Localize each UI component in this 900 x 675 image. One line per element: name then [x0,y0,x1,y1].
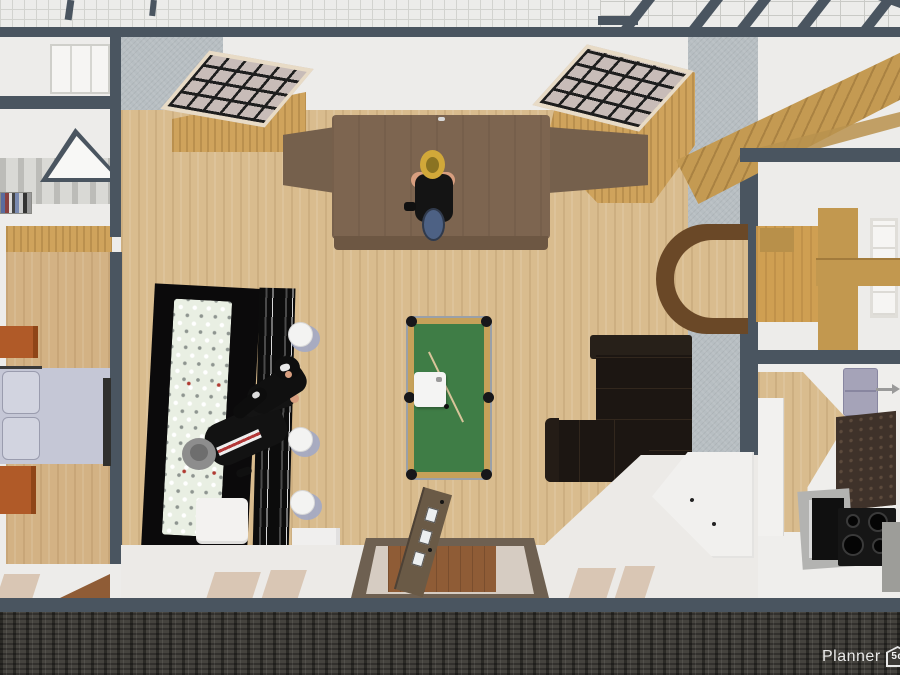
piano-wing-right [548,127,648,193]
bed-frame-edge [0,366,42,369]
pool-pocket [481,316,492,327]
left-upper-window-mullion [70,46,72,92]
piano-knob [438,117,445,121]
piano-wing-left [283,127,335,193]
left-upper-window [50,44,110,94]
sofa-armrest [545,418,559,482]
player-foot [404,202,416,211]
bartender-tray-center [190,444,208,461]
watermark-badge: 5d [888,648,900,665]
door-hinge-dot [428,548,432,552]
bar-stool [288,322,313,347]
sink-cabinet-split [845,390,876,392]
sideboard-handle-dot [712,522,716,526]
dining-set-box [760,228,794,252]
nightstand-bottom [0,466,36,514]
burner [842,534,864,556]
burner [846,514,860,528]
bar-stool [288,427,313,452]
ground-pavement [0,612,900,675]
player-stool [422,208,445,241]
wall-corner-vertical [110,37,121,237]
radiator [196,498,248,544]
player-hair-center [426,157,439,173]
patron-hand [285,371,292,378]
bed-pillow [2,417,40,460]
nightstand-top [0,326,38,358]
left-upper-window-mullion [90,46,92,92]
white-box-dot [436,377,442,382]
render-viewport[interactable]: Planner 5d [0,0,900,675]
bar-stool [290,490,315,515]
roof-tick [598,16,638,25]
wall-kitchen-top [740,350,900,364]
bed-pillow [2,371,40,414]
bedroom-wall-right [110,252,122,564]
kitchen-cabinet-strip [758,398,784,536]
left-wood-ledge [6,226,112,253]
pool-pocket [481,469,492,480]
piano-table-edge [334,236,548,250]
planner5d-watermark: Planner 5d [822,646,900,667]
faucet [876,388,894,391]
kitchen-counter-gray [882,522,900,592]
dining-set-arm [816,258,900,286]
bookshelf-books [0,192,32,214]
sink-cabinet [843,368,878,416]
wall-desk-opening [674,240,748,318]
pool-pocket [406,316,417,327]
wall-dining-top [740,148,900,162]
billiard-ball [444,404,449,409]
left-room-wall [0,96,112,109]
watermark-brand: Planner [822,648,881,666]
pool-pocket [483,392,494,403]
bed-headboard [103,378,111,466]
planner5d-house-icon: 5d [886,646,900,667]
oven-handle [809,500,812,558]
door-hinge-dot [440,500,444,504]
pool-pocket [406,469,417,480]
